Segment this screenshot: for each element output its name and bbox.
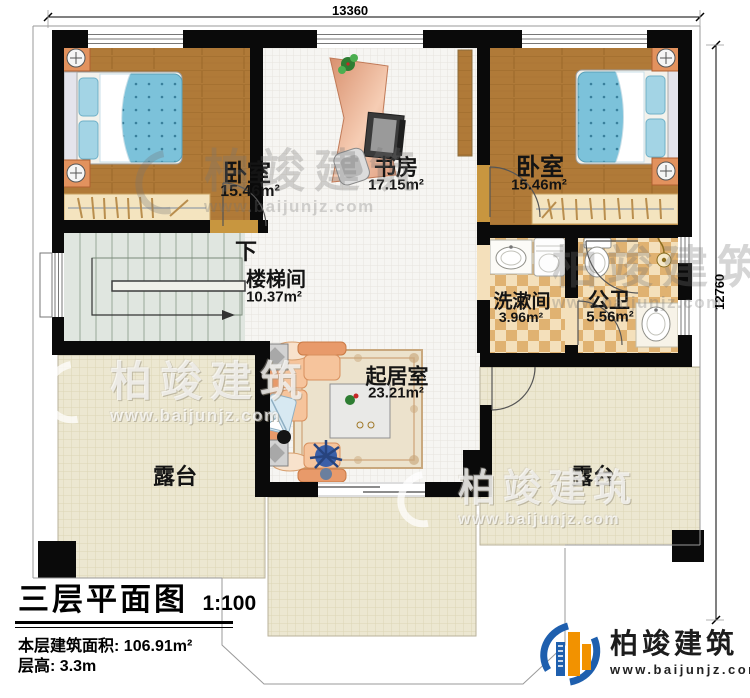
computer-monitor xyxy=(364,112,406,160)
nightstand-left-bottom xyxy=(62,160,90,187)
room-area-bedroom-left: 15.46m² xyxy=(220,184,280,200)
wall-terrace-right-top xyxy=(480,353,692,367)
washing-machine xyxy=(534,238,565,276)
window-left-stairwell xyxy=(40,253,64,317)
floor-height-label: 层高: xyxy=(18,658,55,675)
window-top-left xyxy=(88,30,183,48)
room-area-stairwell: 10.37m² xyxy=(246,290,302,305)
window-right-bathroom-2 xyxy=(678,300,692,335)
nightstand-left-top xyxy=(62,46,90,71)
floor-area-value: 106.91m² xyxy=(124,638,193,655)
stair-railing xyxy=(112,281,245,291)
wall-terrace-left-top xyxy=(52,341,268,355)
room-label-stairwell: 楼梯间 xyxy=(246,270,306,290)
terrace-right-floor xyxy=(480,367,700,545)
nightstand-right-top xyxy=(652,46,680,71)
room-area-washroom: 3.96m² xyxy=(499,310,543,324)
wall-corner-living xyxy=(463,450,484,497)
sofa-single-top xyxy=(298,342,346,380)
title-block: 三层平面图 1:100 xyxy=(18,583,256,617)
title-rule-thick xyxy=(15,621,233,624)
room-label-terrace-right: 露台 xyxy=(571,466,615,488)
nightstand-right-bottom xyxy=(652,158,680,185)
pillar-bottom-right xyxy=(672,530,704,562)
floor-plan-page: 13360 12760 卧室 15.46m² 书房 17.15m² 卧室 15.… xyxy=(0,0,750,698)
dimension-right-label: 12760 xyxy=(712,274,727,310)
plan-title: 三层平面图 xyxy=(18,583,188,617)
floor-lamp xyxy=(277,430,291,444)
floor-height-line: 层高: 3.3m xyxy=(18,652,96,676)
wall-bedroom-right-bottom xyxy=(480,225,692,238)
room-area-living: 23.21m² xyxy=(368,386,424,401)
dimension-line-top xyxy=(44,10,704,28)
dimension-top-label: 13360 xyxy=(332,3,368,18)
bathroom-sink xyxy=(636,303,678,347)
room-label-terrace-left: 露台 xyxy=(153,466,197,488)
door-leaf-bedroom-right xyxy=(458,50,472,156)
plan-scale: 1:100 xyxy=(202,590,256,617)
brand-name: 柏竣建筑 xyxy=(610,629,750,660)
wall-bedleft-study xyxy=(250,40,263,233)
bed-right xyxy=(576,70,682,164)
logo-glyph xyxy=(538,618,602,688)
room-area-study: 17.15m² xyxy=(368,178,424,193)
washroom-sink xyxy=(490,240,532,274)
brand-url: www.baijunjz.com xyxy=(610,662,750,677)
room-area-bathroom: 5.56m² xyxy=(586,310,634,325)
window-top-right xyxy=(522,30,647,48)
window-top-center xyxy=(317,30,423,48)
wall-living-left xyxy=(255,341,270,497)
room-area-bedroom-right: 15.46m² xyxy=(511,178,567,193)
title-rule-thin xyxy=(15,627,233,628)
window-right-bathroom-1 xyxy=(678,237,692,263)
floor-height-value: 3.3m xyxy=(60,658,96,675)
wardrobe-left xyxy=(64,194,210,222)
bed-left xyxy=(64,72,182,164)
dimension-line-right xyxy=(706,41,724,624)
pillar-bottom-left xyxy=(38,541,76,578)
company-logo: 柏竣建筑 www.baijunjz.com xyxy=(538,618,750,688)
terrace-center-floor xyxy=(268,497,476,636)
stair-direction-label: 下 xyxy=(235,241,257,263)
wardrobe-right xyxy=(532,194,678,224)
